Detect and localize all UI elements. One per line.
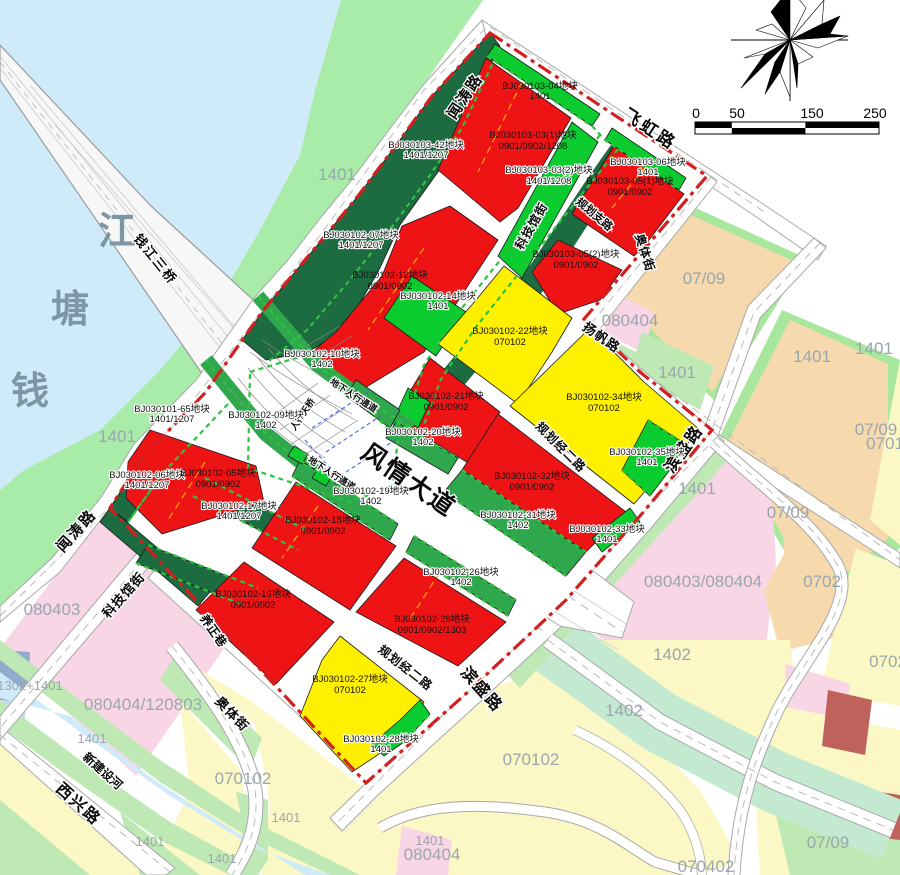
svg-text:1401: 1401 <box>658 363 696 382</box>
svg-text:080404: 080404 <box>602 311 659 330</box>
svg-text:1402: 1402 <box>605 701 643 720</box>
svg-text:BJ030103-03(1)地块0901/0902/1208: BJ030103-03(1)地块0901/0902/1208 <box>489 129 577 152</box>
svg-text:1401: 1401 <box>136 834 165 849</box>
svg-text:1401: 1401 <box>416 833 445 848</box>
svg-text:0702: 0702 <box>803 572 841 591</box>
svg-text:080404/120803: 080404/120803 <box>84 695 202 714</box>
svg-text:1401: 1401 <box>793 347 831 366</box>
svg-text:0: 0 <box>692 105 700 121</box>
svg-text:江: 江 <box>98 211 136 253</box>
svg-text:070402: 070402 <box>678 857 735 875</box>
svg-text:50: 50 <box>729 105 745 121</box>
svg-text:07/09: 07/09 <box>683 269 726 288</box>
svg-text:0702: 0702 <box>869 652 900 671</box>
svg-text:250: 250 <box>863 105 887 121</box>
svg-text:07/09: 07/09 <box>767 503 810 522</box>
svg-text:塘: 塘 <box>51 289 89 331</box>
svg-text:0701: 0701 <box>866 434 900 453</box>
svg-text:150: 150 <box>800 105 824 121</box>
svg-text:1401: 1401 <box>78 731 107 746</box>
svg-text:070102: 070102 <box>215 769 272 788</box>
svg-text:1401: 1401 <box>98 427 136 446</box>
svg-text:1401: 1401 <box>855 339 893 358</box>
svg-text:1401: 1401 <box>272 810 301 825</box>
svg-text:07/09: 07/09 <box>807 833 850 852</box>
svg-text:1401: 1401 <box>208 851 237 866</box>
svg-text:1302+1401: 1302+1401 <box>0 678 63 693</box>
svg-text:钱: 钱 <box>11 371 49 413</box>
svg-text:BJ030102-29地块0901/0902/1303: BJ030102-29地块0901/0902/1303 <box>394 613 470 636</box>
svg-text:1401: 1401 <box>678 479 716 498</box>
svg-text:1401: 1401 <box>318 165 356 184</box>
svg-text:080403/080404: 080403/080404 <box>644 572 762 591</box>
svg-text:070102: 070102 <box>503 750 560 769</box>
svg-text:1402: 1402 <box>653 645 691 664</box>
svg-text:080403: 080403 <box>24 600 81 619</box>
